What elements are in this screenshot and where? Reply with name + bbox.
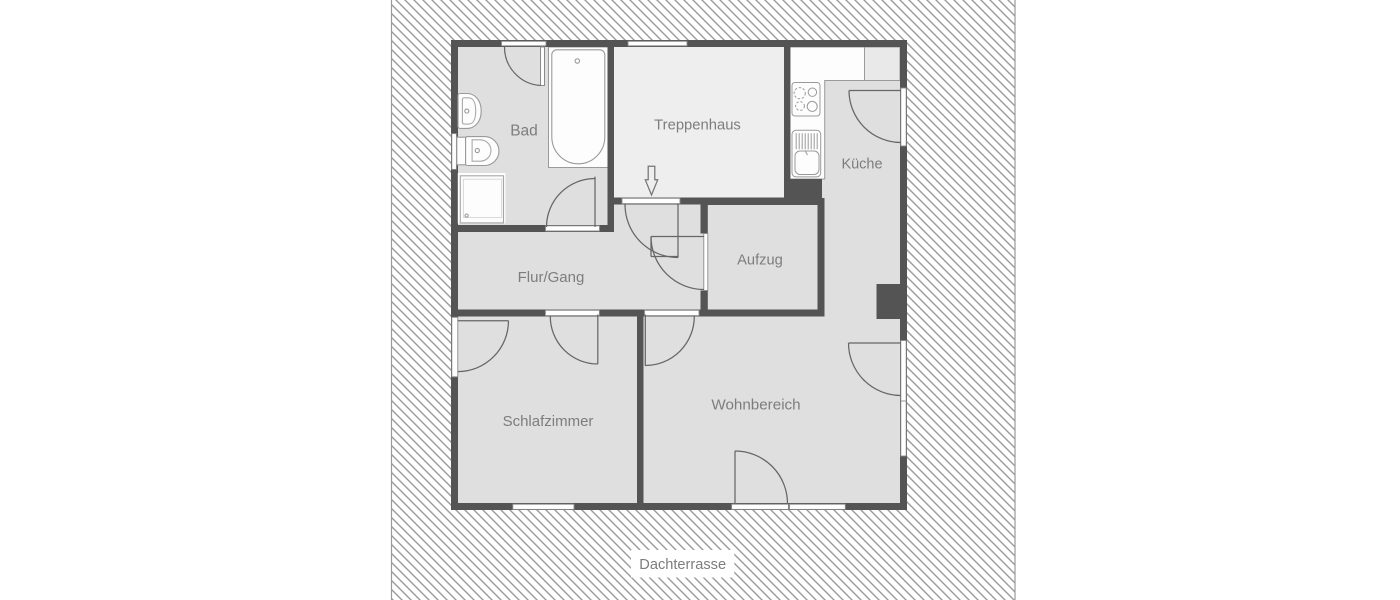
svg-text:Aufzug: Aufzug xyxy=(737,252,783,268)
svg-text:Dachterrasse: Dachterrasse xyxy=(639,557,726,573)
svg-text:Wohnbereich: Wohnbereich xyxy=(711,397,800,414)
svg-text:Treppenhaus: Treppenhaus xyxy=(654,117,741,133)
svg-text:Küche: Küche xyxy=(841,157,882,173)
svg-text:Flur/Gang: Flur/Gang xyxy=(518,269,585,286)
svg-text:Schlafzimmer: Schlafzimmer xyxy=(503,413,594,430)
svg-text:Bad: Bad xyxy=(510,123,538,140)
